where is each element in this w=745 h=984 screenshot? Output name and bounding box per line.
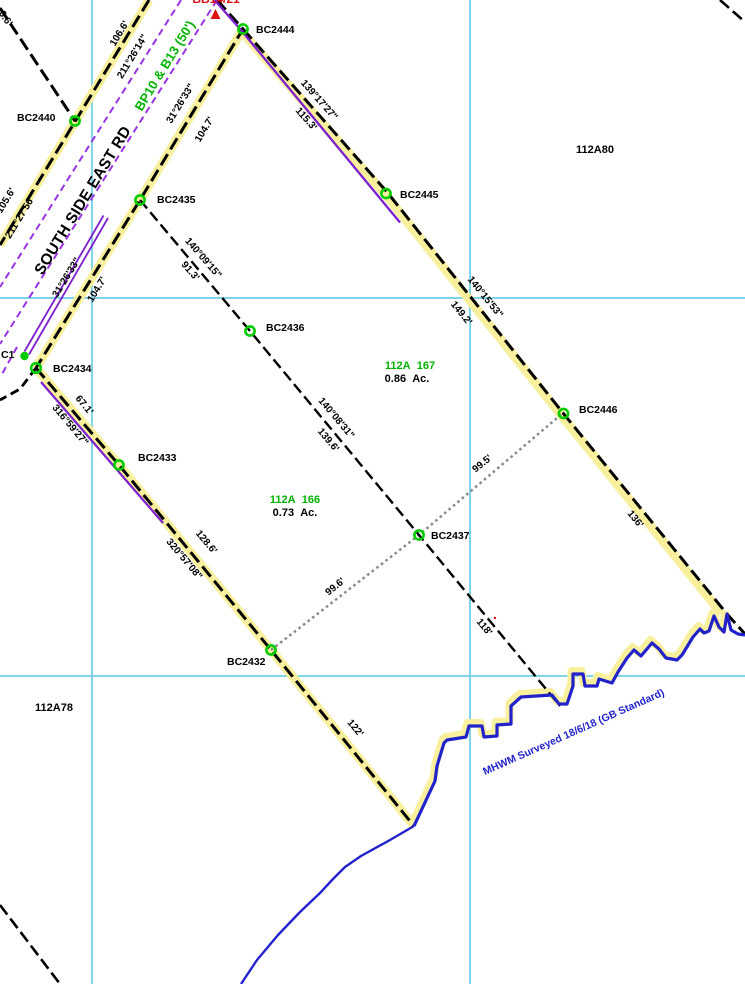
svg-text:BC2435: BC2435 — [157, 194, 196, 206]
svg-text:BC2433: BC2433 — [138, 452, 177, 464]
svg-text:BC2432: BC2432 — [227, 656, 266, 668]
svg-text:BC2436: BC2436 — [266, 322, 305, 334]
svg-text:BC2446: BC2446 — [579, 404, 618, 416]
svg-text:BC2437: BC2437 — [431, 530, 470, 542]
svg-text:0.73 Ac.: 0.73 Ac. — [273, 507, 318, 519]
svg-text:112A78: 112A78 — [35, 702, 73, 714]
svg-text:BB14/21: BB14/21 — [192, 0, 240, 6]
svg-text:BC2445: BC2445 — [400, 189, 439, 201]
svg-text:BC2440: BC2440 — [17, 112, 56, 124]
svg-text:112A 166: 112A 166 — [270, 494, 320, 506]
svg-text:0.86 Ac.: 0.86 Ac. — [385, 373, 430, 385]
svg-text:BC2444: BC2444 — [256, 24, 295, 36]
svg-text:112A 167: 112A 167 — [385, 360, 435, 372]
svg-text:C1: C1 — [1, 349, 15, 361]
svg-text:BC2434: BC2434 — [53, 363, 92, 375]
svg-text:112A80: 112A80 — [576, 144, 614, 156]
